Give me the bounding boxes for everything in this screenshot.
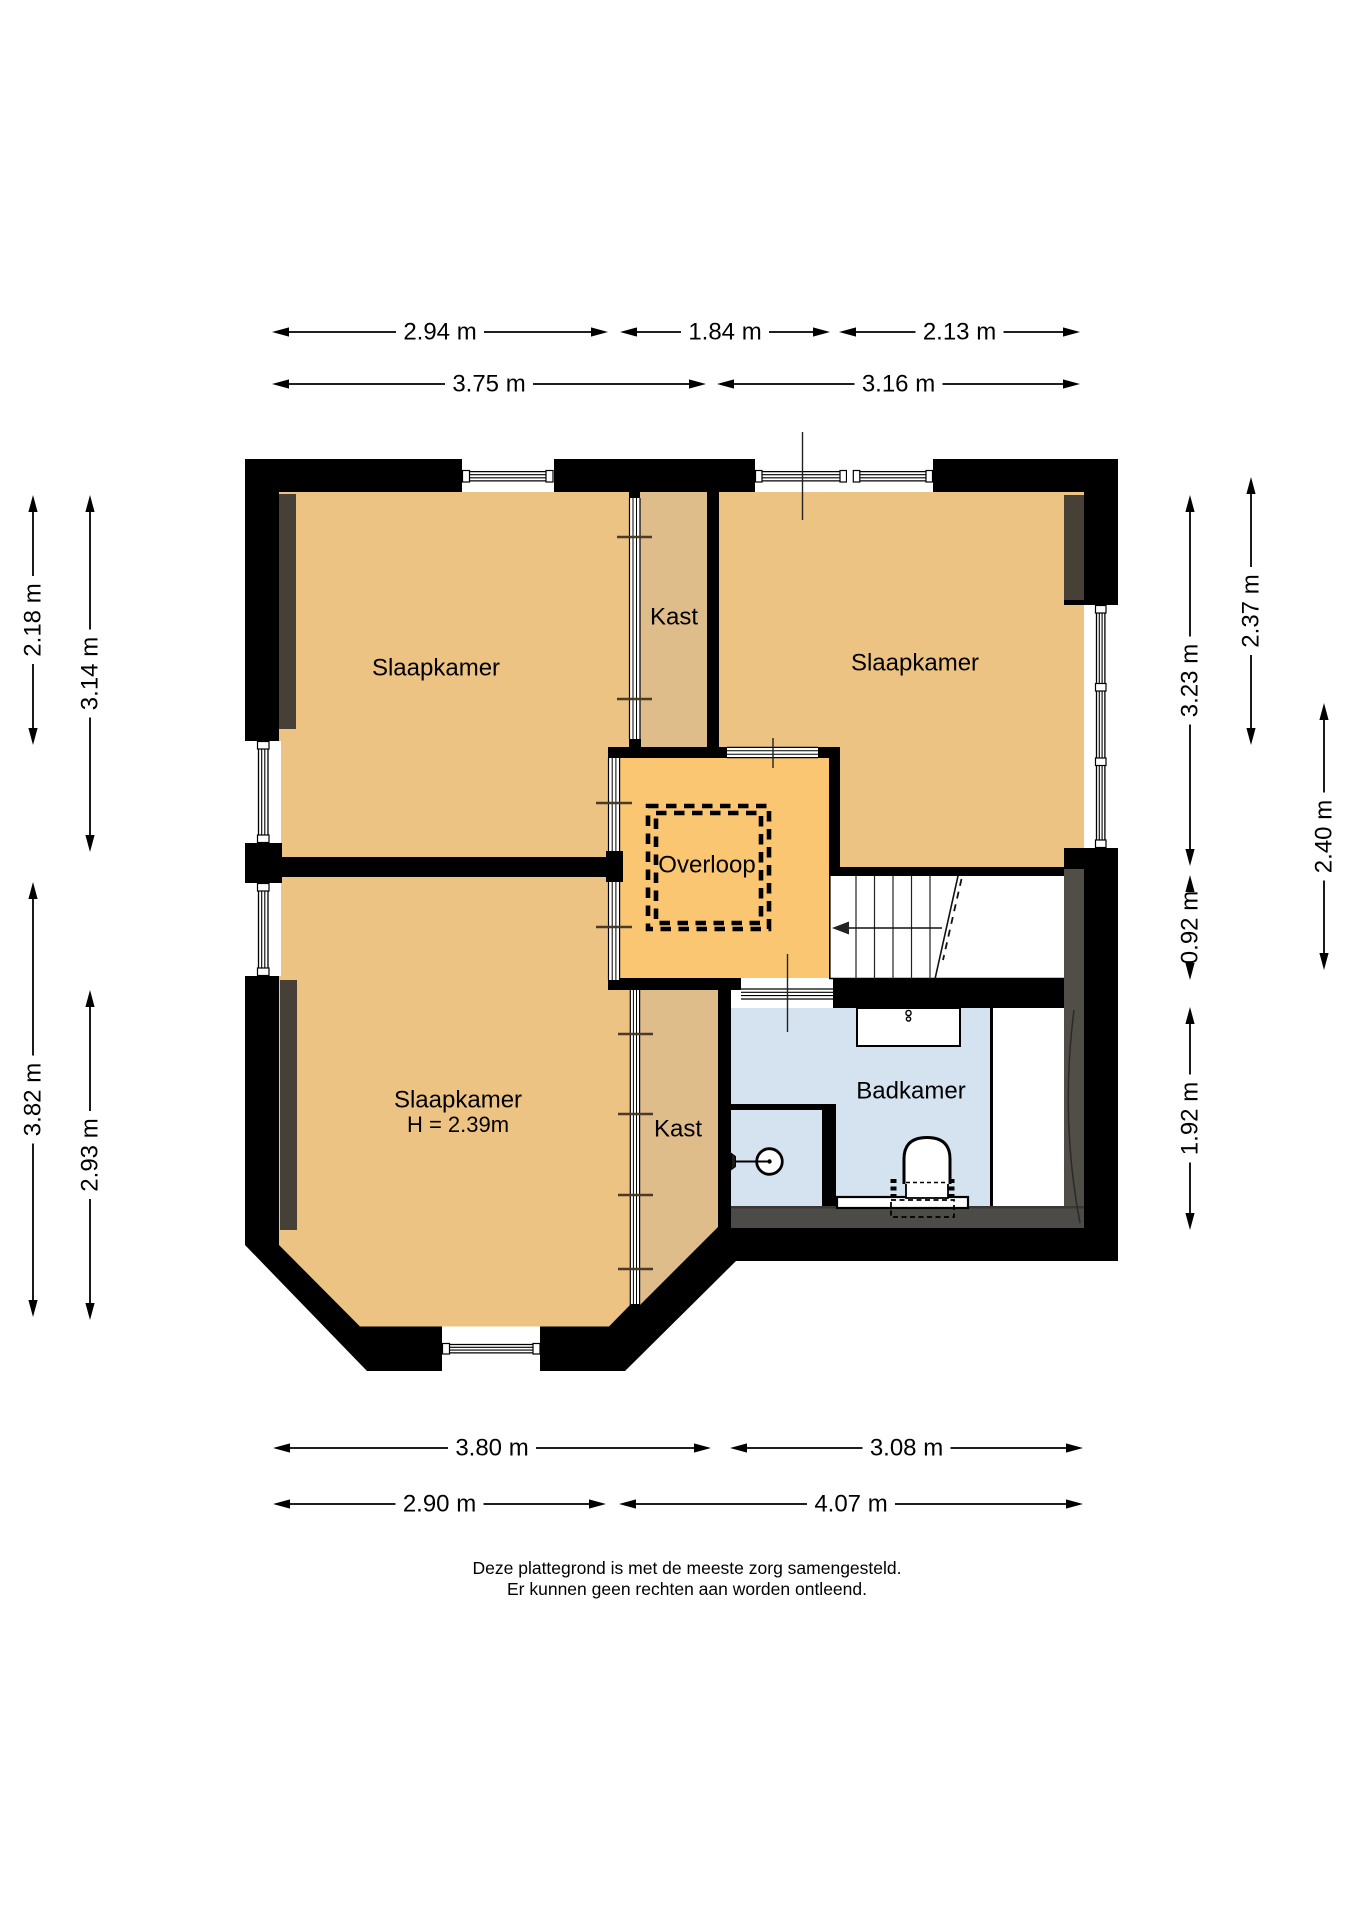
svg-text:H = 2.39m: H = 2.39m <box>407 1112 509 1137</box>
svg-text:3.08 m: 3.08 m <box>870 1435 943 1462</box>
svg-text:3.16 m: 3.16 m <box>862 371 935 398</box>
svg-text:1.84 m: 1.84 m <box>688 319 761 346</box>
svg-text:2.40 m: 2.40 m <box>1311 800 1338 873</box>
svg-text:3.14 m: 3.14 m <box>77 637 104 710</box>
svg-text:3.80 m: 3.80 m <box>455 1435 528 1462</box>
svg-text:Slaapkamer: Slaapkamer <box>394 1086 522 1113</box>
svg-text:0.92 m: 0.92 m <box>1177 891 1204 964</box>
svg-text:2.90 m: 2.90 m <box>403 1491 476 1518</box>
svg-text:3.23 m: 3.23 m <box>1177 644 1204 717</box>
svg-text:4.07 m: 4.07 m <box>814 1491 887 1518</box>
svg-text:2.94 m: 2.94 m <box>403 319 476 346</box>
svg-text:2.13 m: 2.13 m <box>923 319 996 346</box>
svg-text:Deze plattegrond is met de mee: Deze plattegrond is met de meeste zorg s… <box>473 1558 902 1578</box>
svg-text:3.82 m: 3.82 m <box>20 1063 47 1136</box>
svg-text:Badkamer: Badkamer <box>856 1077 965 1104</box>
svg-text:2.93 m: 2.93 m <box>77 1118 104 1191</box>
svg-text:Overloop: Overloop <box>658 851 755 878</box>
svg-text:Slaapkamer: Slaapkamer <box>372 654 500 681</box>
svg-text:Er kunnen geen rechten aan wor: Er kunnen geen rechten aan worden ontlee… <box>507 1579 867 1599</box>
svg-text:Kast: Kast <box>650 603 698 630</box>
svg-text:3.75 m: 3.75 m <box>452 371 525 398</box>
svg-text:Slaapkamer: Slaapkamer <box>851 649 979 676</box>
svg-text:1.92 m: 1.92 m <box>1177 1082 1204 1155</box>
svg-text:Kast: Kast <box>654 1115 702 1142</box>
svg-text:2.18 m: 2.18 m <box>20 583 47 656</box>
svg-text:2.37 m: 2.37 m <box>1238 574 1265 647</box>
